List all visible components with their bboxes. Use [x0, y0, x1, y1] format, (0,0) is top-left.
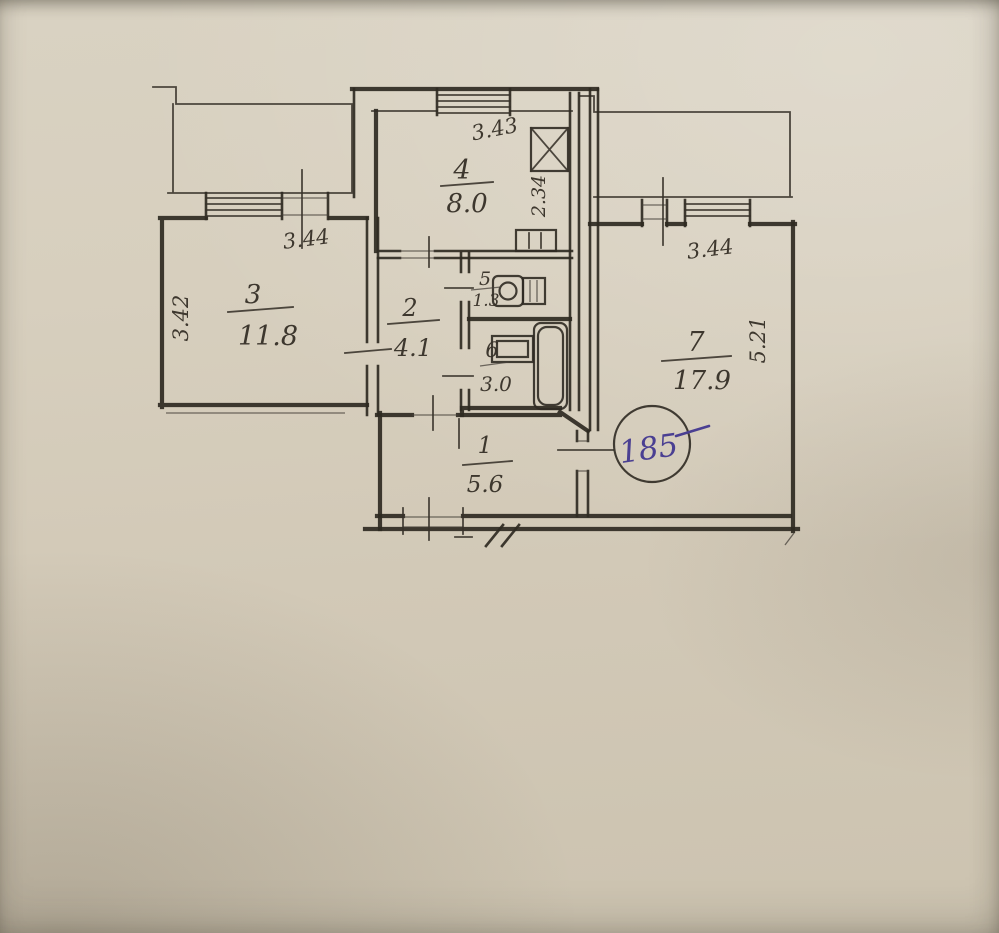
room3-number: 3 [245, 280, 262, 310]
room7-window-symbol [642, 178, 750, 245]
dim-room7-top: 3.44 [685, 234, 734, 264]
stove-icon [516, 230, 556, 251]
floor-plan-photo: 3 11.8 4 8.0 2 4.1 5 1.3 6 3.0 1 5.6 7 1… [0, 0, 999, 933]
kitchen-window-symbol [437, 89, 510, 115]
room7-area: 17.9 [673, 366, 731, 396]
room5-number: 5 [479, 268, 491, 290]
entrance-door-ticks [403, 498, 463, 540]
room6-number: 6 [485, 338, 498, 362]
apartment-number: 185 [617, 427, 681, 471]
door-opening-tick [345, 349, 391, 353]
apartment-number-stamp: 185 [614, 406, 709, 482]
room2-area: 4.1 [393, 334, 432, 362]
vent-shaft-icon [531, 128, 568, 171]
door-opening-tick [433, 396, 459, 448]
room3-area: 11.8 [238, 321, 298, 352]
room4-number: 4 [452, 155, 470, 186]
floor-plan-drawing: 3 11.8 4 8.0 2 4.1 5 1.3 6 3.0 1 5.6 7 1… [0, 0, 999, 933]
room4-area: 8.0 [446, 189, 487, 219]
dim-room7-right: 5.21 [746, 317, 770, 364]
room1-area: 5.6 [467, 472, 504, 498]
room2-number: 2 [401, 294, 417, 322]
room6-area: 3.0 [480, 372, 512, 396]
balcony-right [580, 96, 792, 197]
dim-room3-left: 3.42 [169, 295, 193, 342]
dim-kitchen-top: 3.43 [469, 113, 519, 145]
room5-area: 1.3 [472, 291, 499, 311]
room1-number: 1 [478, 433, 493, 459]
balcony-left [153, 87, 352, 193]
dim-room3-top: 3.44 [281, 224, 330, 254]
dim-kitchen-right: 2.34 [528, 175, 550, 218]
toilet-icon [493, 276, 545, 306]
room7-number: 7 [687, 327, 705, 358]
bathtub-icon [534, 323, 567, 409]
